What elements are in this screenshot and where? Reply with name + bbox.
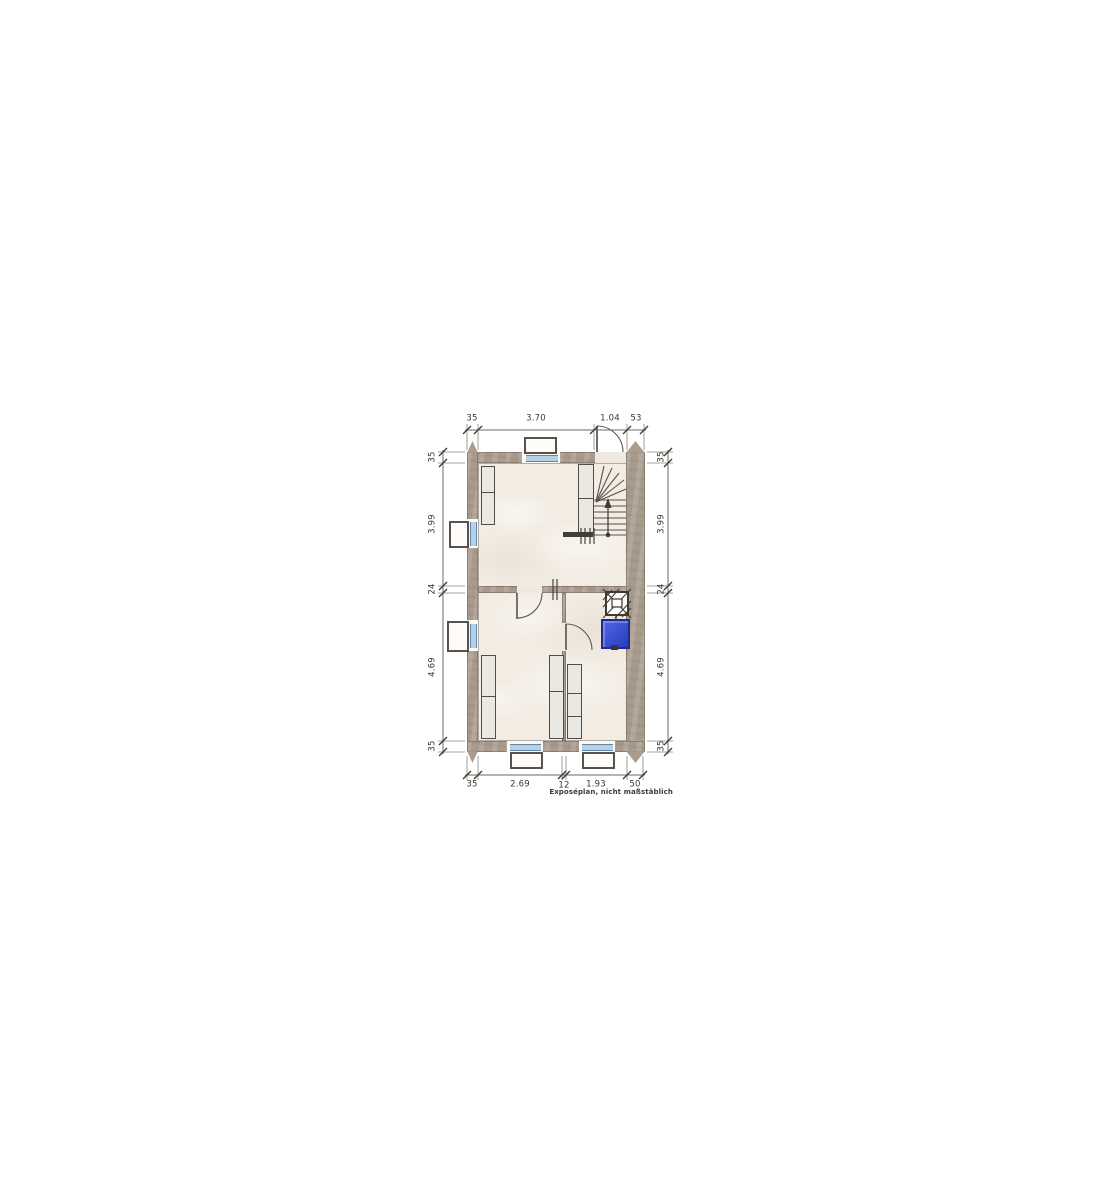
window-left-lower-sill-box [447,621,469,652]
wardrobe-lower-left-wall [481,655,496,739]
window-bottom-left-glazing [510,744,541,751]
entry-door-icon [597,426,623,452]
wardrobe-divider-line [481,492,495,493]
window-bottom-right-sill-box [582,752,615,769]
room-door-opening-divider [562,623,566,651]
dim-label: 35 [466,781,477,790]
dim-label: 2.69 [510,781,530,790]
washbasin-drain [611,645,618,650]
window-bottom-left-sill-box [510,752,543,769]
dim-label: 53 [630,415,641,424]
wardrobe-divider-line [549,691,564,692]
wardrobe-divider-line [481,696,496,697]
dim-label: 3.99 [429,514,438,534]
wall-left [467,452,478,752]
wall-middle [478,586,627,593]
dim-label: 3.70 [526,415,546,424]
window-left-upper-sill-box [449,521,469,548]
dim-label: 35 [429,740,438,751]
dim-label: 24 [658,583,667,594]
floorplan-canvas: 35 3.70 1.04 53 35 2.69 12 1.93 50 35 3.… [0,0,1094,1200]
window-bottom-right-glazing [582,744,613,751]
room-door-opening-middle [517,586,542,593]
floorplan: 35 3.70 1.04 53 35 2.69 12 1.93 50 35 3.… [0,0,1094,1200]
wardrobe-lower-left-divider [549,655,564,739]
dim-label: 35 [658,740,667,751]
entry-door-opening [595,452,626,463]
stair-stub-wall [563,532,593,537]
dim-label: 35 [429,451,438,462]
wardrobe-divider-line [567,693,582,694]
window-top-glazing [526,455,558,462]
dim-label: 4.69 [658,657,667,677]
dim-label: 3.99 [658,514,667,534]
wardrobe-divider-line [578,498,594,499]
wardrobe-upper-left [481,466,495,525]
wall-bottom [467,741,645,752]
dim-label: 35 [466,415,477,424]
dim-label: 35 [658,451,667,462]
window-left-upper-glazing [470,522,477,546]
dim-label: 1.04 [600,415,620,424]
wardrobe-divider-line [567,716,582,717]
wall-right [626,452,645,752]
window-top-sill-box [524,437,557,454]
wardrobe-lower-right [567,664,582,739]
plan-disclaimer: Exposéplan, nicht maßstäblich [549,788,673,796]
window-left-lower-glazing [470,624,477,648]
dim-label: 4.69 [429,657,438,677]
dim-label: 24 [429,583,438,594]
wardrobe-upper-right [578,464,594,534]
